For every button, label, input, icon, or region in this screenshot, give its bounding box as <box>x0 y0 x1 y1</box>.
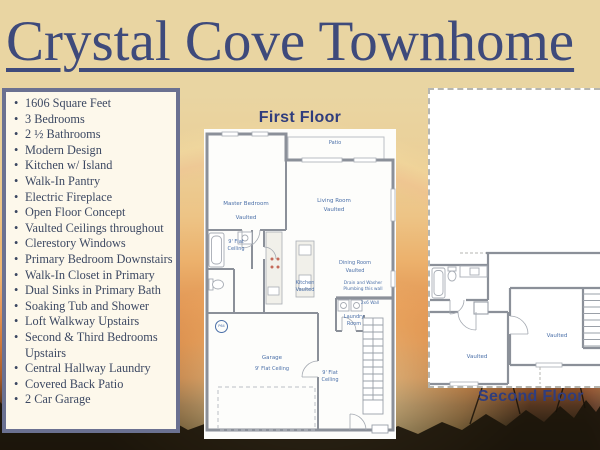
feature-item: Clerestory Windows <box>13 236 174 252</box>
feature-item: Loft Walkway Upstairs <box>13 314 174 330</box>
second-floor-drawing <box>430 90 600 386</box>
features-panel: 1606 Square Feet 3 Bedrooms 2 ½ Bathroom… <box>2 88 180 433</box>
page-title: Crystal Cove Townhome <box>6 13 574 70</box>
sf-stairs <box>583 294 600 346</box>
label-dining-room: Dining Room <box>332 260 378 267</box>
sf-door-arcs <box>450 300 528 334</box>
feature-item: 3 Bedrooms <box>13 112 174 128</box>
label-kitchen: Kitchen <box>284 280 326 287</box>
feature-item: Walk-In Pantry <box>13 174 174 190</box>
label-master-bedroom: Master Bedroom <box>215 201 277 208</box>
feature-item: Primary Bedroom Downstairs <box>13 252 174 268</box>
label-dining-room-note: Vaulted <box>332 268 378 275</box>
feature-item: Vaulted Ceilings throughout <box>13 221 174 237</box>
first-floor-heading: First Floor <box>240 109 360 127</box>
label-hall-ceiling: 9' Flat Ceiling <box>317 370 343 383</box>
feature-item: Open Floor Concept <box>13 205 174 221</box>
plan-mark-badge: P64 <box>215 320 228 333</box>
flyer-canvas: Crystal Cove Townhome 1606 Square Feet 3… <box>0 0 600 450</box>
label-sf-left-bedroom-note: Vaulted <box>457 354 497 361</box>
feature-item: 2 Car Garage <box>13 392 174 408</box>
feature-item: Soaking Tub and Shower <box>13 299 174 315</box>
entry-stoop <box>372 425 388 433</box>
label-sf-right-bedroom-note: Vaulted <box>535 333 579 340</box>
label-kitchen-note: Vaulted <box>284 287 326 294</box>
features-list: 1606 Square Feet 3 Bedrooms 2 ½ Bathroom… <box>13 96 174 408</box>
label-master-bedroom-note: Vaulted <box>215 215 277 222</box>
label-bath-ceiling: 9' Flat Ceiling <box>223 239 249 252</box>
label-living-room: Living Room <box>304 198 364 205</box>
label-plumbing-note: Drain and Washer Plumbing this wall <box>339 281 387 292</box>
feature-item: Second & Third Bedrooms Upstairs <box>13 330 174 361</box>
feature-item: 2 ½ Bathrooms <box>13 127 174 143</box>
second-floor-heading: Second Floor <box>478 388 584 406</box>
label-living-room-note: Vaulted <box>304 207 364 214</box>
feature-item: Modern Design <box>13 143 174 159</box>
feature-item: Kitchen w/ Island <box>13 158 174 174</box>
feature-item: Dual Sinks in Primary Bath <box>13 283 174 299</box>
label-patio: Patio <box>316 140 354 147</box>
feature-item: Walk-In Closet in Primary <box>13 268 174 284</box>
feature-item: Electric Fireplace <box>13 190 174 206</box>
sf-bath-fixtures <box>432 266 487 298</box>
second-floor-plan: Vaulted Vaulted <box>428 88 600 388</box>
label-wall-note: 2x6 Wall <box>350 301 390 307</box>
label-garage-ceiling: 9' Flat Ceiling <box>245 366 299 373</box>
feature-item: Central Hallway Laundry <box>13 361 174 377</box>
label-garage: Garage <box>250 355 294 362</box>
sf-windows <box>450 363 562 386</box>
feature-item: Covered Back Patio <box>13 377 174 393</box>
label-laundry-room: Laundry Room <box>339 314 369 327</box>
stairs <box>363 318 383 414</box>
feature-item: 1606 Square Feet <box>13 96 174 112</box>
first-floor-plan: Master Bedroom Vaulted Patio Living Room… <box>204 129 396 439</box>
